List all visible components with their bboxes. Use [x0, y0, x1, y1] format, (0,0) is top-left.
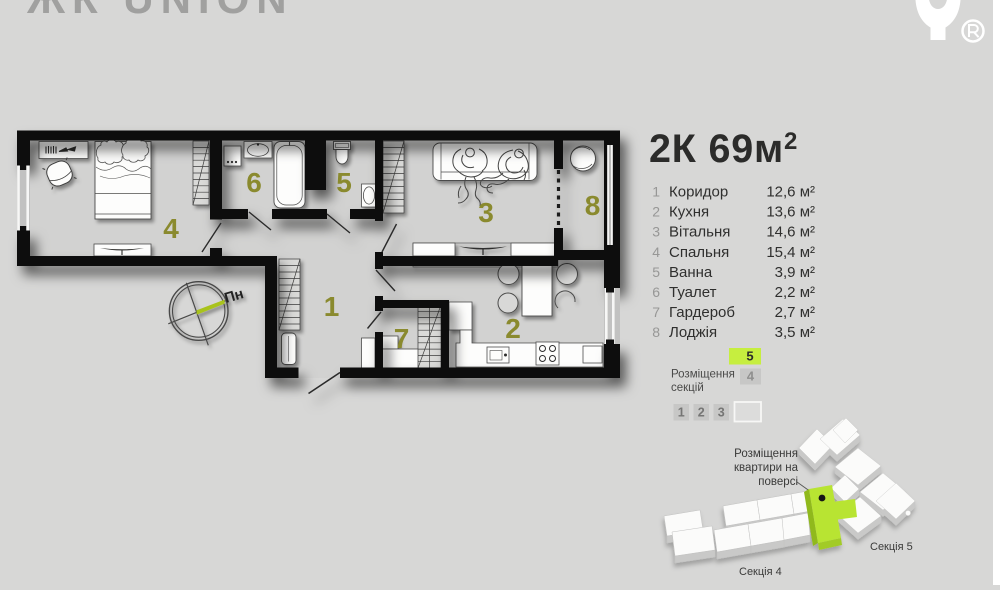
- svg-text:Кухня: Кухня: [669, 204, 709, 221]
- svg-text:6: 6: [652, 284, 660, 300]
- svg-text:6: 6: [246, 167, 262, 198]
- svg-text:13,6 м²: 13,6 м²: [766, 204, 815, 221]
- svg-text:5: 5: [746, 349, 753, 364]
- svg-text:3,9 м²: 3,9 м²: [775, 264, 815, 281]
- svg-text:14,6 м²: 14,6 м²: [766, 224, 815, 241]
- svg-text:Секція 5: Секція 5: [870, 541, 913, 553]
- svg-text:4: 4: [652, 244, 660, 260]
- svg-text:1: 1: [324, 291, 340, 322]
- svg-text:поверсі: поверсі: [758, 476, 798, 488]
- svg-text:Спальня: Спальня: [669, 244, 729, 261]
- svg-text:2: 2: [698, 406, 705, 420]
- svg-text:ЖК UNION: ЖК UNION: [26, 0, 294, 22]
- svg-text:секцій: секцій: [671, 382, 704, 394]
- svg-text:Ванна: Ванна: [669, 264, 713, 281]
- svg-text:5: 5: [336, 167, 352, 198]
- svg-text:3: 3: [652, 224, 660, 240]
- svg-text:Вітальня: Вітальня: [669, 224, 730, 241]
- svg-text:7: 7: [652, 304, 660, 320]
- svg-text:Лоджія: Лоджія: [669, 324, 717, 341]
- svg-text:2: 2: [505, 313, 521, 344]
- svg-text:12,6 м²: 12,6 м²: [766, 184, 815, 201]
- svg-text:8: 8: [652, 324, 660, 340]
- svg-text:Розміщення: Розміщення: [734, 448, 798, 460]
- svg-text:2,2 м²: 2,2 м²: [775, 284, 815, 301]
- svg-text:3: 3: [478, 197, 494, 228]
- svg-text:4: 4: [747, 369, 755, 384]
- svg-text:8: 8: [585, 190, 601, 221]
- svg-text:1: 1: [652, 184, 660, 200]
- svg-text:2,7 м²: 2,7 м²: [775, 304, 815, 321]
- svg-text:Секція 4: Секція 4: [739, 566, 782, 578]
- svg-text:5: 5: [652, 264, 660, 280]
- svg-text:квартири на: квартири на: [734, 462, 799, 474]
- svg-text:3,5 м²: 3,5 м²: [775, 324, 815, 341]
- svg-text:Туалет: Туалет: [669, 284, 717, 301]
- svg-text:7: 7: [394, 323, 410, 354]
- svg-text:3: 3: [718, 406, 725, 420]
- svg-text:15,4 м²: 15,4 м²: [766, 244, 815, 261]
- svg-text:4: 4: [163, 213, 179, 244]
- svg-text:1: 1: [678, 406, 685, 420]
- svg-text:2К 69м2: 2К 69м2: [649, 127, 798, 171]
- svg-text:Розміщення: Розміщення: [671, 369, 735, 381]
- svg-text:2: 2: [652, 204, 660, 220]
- svg-text:Коридор: Коридор: [669, 184, 728, 201]
- svg-text:Гардероб: Гардероб: [669, 304, 735, 321]
